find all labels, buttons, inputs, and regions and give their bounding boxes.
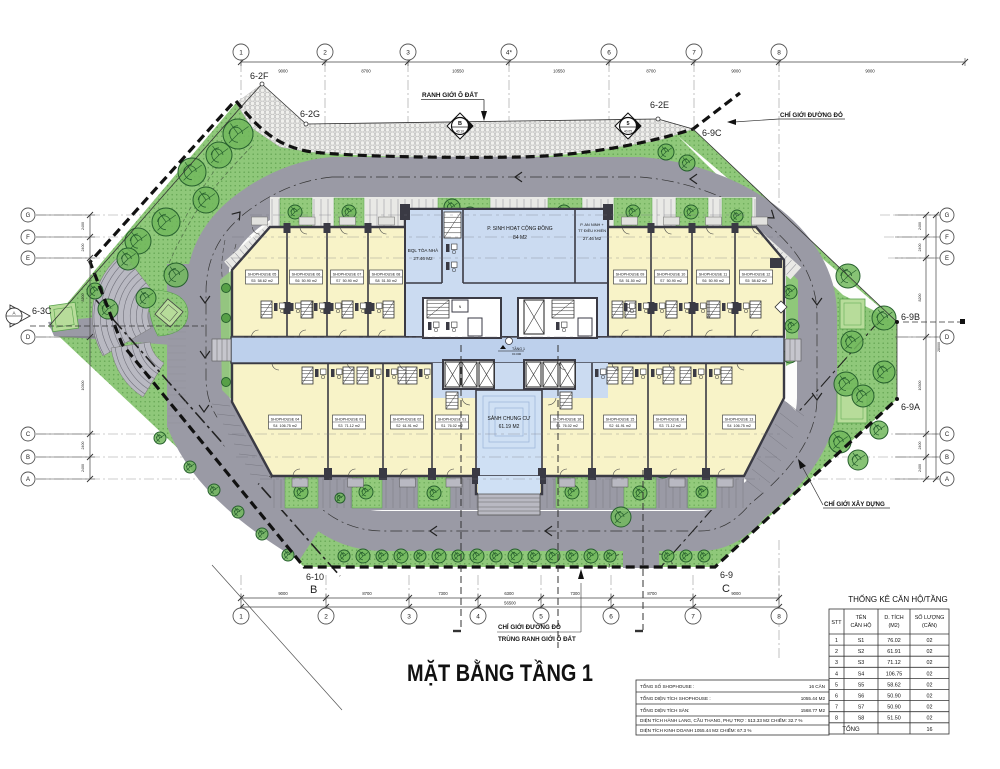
svg-text:STT: STT (831, 620, 842, 626)
svg-text:8: 8 (835, 716, 838, 722)
svg-text:S7: S7 (858, 705, 865, 711)
svg-text:1568.77 M2: 1568.77 M2 (801, 708, 826, 713)
svg-text:TÊN: TÊN (856, 613, 867, 621)
svg-text:10300: 10300 (918, 381, 922, 391)
svg-text:S5 58.62 m2: S5 58.62 m2 (745, 279, 767, 283)
svg-text:DIỆN TÍCH HÀNH LANG, CẦU THANG: DIỆN TÍCH HÀNH LANG, CẦU THANG, PHỤ TRỢ … (640, 716, 802, 723)
svg-text:SHOPHOUSE 03: SHOPHOUSE 03 (335, 418, 364, 422)
svg-text:DIỆN TÍCH KINH DOANH 1055.44 M: DIỆN TÍCH KINH DOANH 1055.44 M2 CHIẾM: 6… (640, 726, 751, 733)
svg-text:61.91: 61.91 (887, 649, 901, 655)
svg-text:84 M2: 84 M2 (513, 235, 527, 241)
svg-text:MẶT BẰNG TẦNG 1: MẶT BẰNG TẦNG 1 (407, 659, 593, 687)
svg-text:6-9C: 6-9C (702, 128, 722, 138)
svg-text:6: 6 (609, 613, 613, 620)
svg-text:3: 3 (407, 613, 411, 620)
svg-text:±0.000: ±0.000 (512, 352, 521, 356)
svg-text:F: F (26, 235, 30, 241)
svg-text:TẦNG 1: TẦNG 1 (512, 347, 525, 351)
svg-text:SHOPHOUSE 10: SHOPHOUSE 10 (657, 273, 686, 277)
svg-text:02: 02 (927, 638, 933, 644)
svg-text:2: 2 (324, 613, 328, 620)
svg-text:A: A (26, 477, 30, 483)
svg-text:S4 106.75 m2: S4 106.75 m2 (727, 424, 751, 428)
svg-text:B: B (310, 584, 317, 596)
svg-text:SHOPHOUSE 16: SHOPHOUSE 16 (553, 418, 582, 422)
svg-text:S6: S6 (858, 694, 865, 700)
svg-text:8700: 8700 (646, 69, 656, 74)
svg-text:CHỈ GIỚI ĐƯỜNG ĐỎ: CHỈ GIỚI ĐƯỜNG ĐỎ (498, 623, 561, 631)
svg-text:5: 5 (835, 682, 838, 688)
svg-text:40.10: 40.10 (456, 130, 464, 134)
svg-text:SHOPHOUSE 06: SHOPHOUSE 06 (292, 273, 321, 277)
svg-text:S1 76.02 m2: S1 76.02 m2 (441, 424, 463, 428)
svg-text:1: 1 (239, 613, 243, 620)
svg-text:S7 50.90 m2: S7 50.90 m2 (660, 279, 682, 283)
svg-text:S7 50.90 m2: S7 50.90 m2 (336, 279, 358, 283)
svg-text:TỔNG SỐ SHOPHOUSE :: TỔNG SỐ SHOPHOUSE : (640, 683, 694, 689)
svg-text:SHOPHOUSE 05: SHOPHOUSE 05 (248, 273, 277, 277)
svg-text:6-9: 6-9 (720, 570, 733, 580)
svg-text:02: 02 (927, 716, 933, 722)
svg-text:SẢNH CHUNG CƯ: SẢNH CHUNG CƯ (488, 415, 532, 422)
svg-text:S6 50.90 m2: S6 50.90 m2 (295, 279, 317, 283)
svg-text:SHOPHOUSE 02: SHOPHOUSE 02 (393, 418, 422, 422)
svg-text:58.62: 58.62 (887, 682, 901, 688)
svg-text:76.02: 76.02 (887, 638, 901, 644)
svg-text:S3 71.12 m2: S3 71.12 m2 (659, 424, 681, 428)
svg-text:7300: 7300 (570, 591, 580, 596)
svg-text:P. AN NINH +: P. AN NINH + (580, 222, 604, 227)
svg-text:40.05: 40.05 (624, 130, 632, 134)
svg-text:7: 7 (835, 705, 838, 711)
svg-text:SHOPHOUSE 08: SHOPHOUSE 08 (372, 273, 401, 277)
svg-text:8700: 8700 (362, 591, 372, 596)
svg-text:8200: 8200 (918, 294, 922, 302)
svg-text:10300: 10300 (81, 381, 85, 391)
svg-text:TỔNG: TỔNG (842, 726, 860, 733)
svg-text:D: D (26, 335, 31, 341)
svg-text:6: 6 (835, 694, 838, 700)
svg-text:7300: 7300 (438, 591, 448, 596)
svg-text:D: D (945, 335, 950, 341)
svg-text:S5: S5 (858, 682, 865, 688)
svg-text:6300: 6300 (504, 591, 514, 596)
svg-text:6-10: 6-10 (306, 572, 324, 582)
svg-text:S1: S1 (858, 638, 865, 644)
svg-text:G: G (26, 213, 31, 219)
svg-text:2400: 2400 (918, 442, 922, 450)
svg-text:9000: 9000 (731, 591, 741, 596)
svg-text:SHOPHOUSE 07: SHOPHOUSE 07 (333, 273, 362, 277)
svg-text:2: 2 (835, 649, 838, 655)
svg-text:A: A (945, 477, 949, 483)
svg-text:3: 3 (406, 49, 410, 56)
svg-text:27.46 M2: 27.46 M2 (413, 256, 433, 261)
svg-text:C: C (945, 432, 950, 438)
svg-text:TT ĐIỀU KHIỂN: TT ĐIỀU KHIỂN (578, 228, 606, 233)
svg-text:6-3C: 6-3C (32, 306, 52, 316)
svg-text:8: 8 (777, 49, 781, 56)
svg-text:A: A (12, 311, 15, 316)
svg-text:28000: 28000 (937, 342, 941, 352)
svg-text:BQL TÒA NHÀ: BQL TÒA NHÀ (408, 247, 439, 253)
svg-text:F: F (945, 235, 949, 241)
svg-text:2400: 2400 (81, 244, 85, 252)
svg-text:TỔNG DIỆN TÍCH SÀN:: TỔNG DIỆN TÍCH SÀN: (640, 706, 689, 713)
svg-text:THỐNG KÊ CĂN HỘ/TẦNG: THỐNG KÊ CĂN HỘ/TẦNG (848, 594, 948, 604)
svg-text:C: C (722, 583, 730, 595)
svg-text:9000: 9000 (278, 591, 288, 596)
svg-text:1: 1 (835, 638, 838, 644)
svg-text:50.90: 50.90 (887, 705, 901, 711)
svg-text:10550: 10550 (452, 69, 464, 74)
svg-text:02: 02 (927, 649, 933, 655)
svg-text:6-2G: 6-2G (300, 109, 320, 119)
svg-text:S4 106.75 m2: S4 106.75 m2 (273, 424, 297, 428)
svg-text:S8 51.50 m2: S8 51.50 m2 (619, 279, 641, 283)
svg-text:8700: 8700 (647, 591, 657, 596)
svg-text:9000: 9000 (278, 69, 288, 74)
svg-text:2400: 2400 (81, 464, 85, 472)
svg-text:SHOPHOUSE 14: SHOPHOUSE 14 (656, 418, 685, 422)
svg-text:2400: 2400 (81, 442, 85, 450)
svg-text:SHOPHOUSE 09: SHOPHOUSE 09 (616, 273, 645, 277)
svg-text:C: C (26, 432, 31, 438)
svg-text:6-9B: 6-9B (901, 312, 920, 322)
svg-text:6-9A: 6-9A (901, 402, 920, 412)
svg-text:4: 4 (835, 671, 838, 677)
svg-text:S6 50.90 m2: S6 50.90 m2 (702, 279, 724, 283)
svg-text:9000: 9000 (865, 69, 875, 74)
svg-text:S3: S3 (858, 660, 865, 666)
svg-text:2400: 2400 (918, 244, 922, 252)
svg-text:D. TÍCH: D. TÍCH (884, 614, 903, 621)
svg-text:8200: 8200 (81, 294, 85, 302)
svg-text:9000: 9000 (731, 69, 741, 74)
svg-text:1: 1 (239, 49, 243, 56)
svg-text:4*: 4* (506, 49, 513, 56)
svg-text:1055.44 M2: 1055.44 M2 (801, 696, 826, 701)
svg-text:CĂN HỘ: CĂN HỘ (851, 622, 872, 629)
svg-text:SHOPHOUSE 12: SHOPHOUSE 12 (742, 273, 771, 277)
svg-text:2400: 2400 (918, 222, 922, 230)
svg-text:B: B (26, 455, 30, 461)
svg-text:S4: S4 (858, 671, 865, 677)
svg-text:02: 02 (927, 671, 933, 677)
svg-text:B: B (945, 455, 949, 461)
svg-text:8700: 8700 (361, 69, 371, 74)
svg-text:71.12: 71.12 (887, 660, 901, 666)
svg-text:S3 71.12 m2: S3 71.12 m2 (338, 424, 360, 428)
svg-text:5: 5 (626, 121, 629, 127)
svg-text:SHOPHOUSE 01: SHOPHOUSE 01 (438, 418, 467, 422)
svg-text:TỔNG DIỆN TÍCH SHOPHOUSE :: TỔNG DIỆN TÍCH SHOPHOUSE : (640, 694, 711, 701)
svg-text:16: 16 (927, 727, 933, 733)
svg-text:S2: S2 (858, 649, 865, 655)
svg-text:CHỈ GIỚI XÂY DỰNG: CHỈ GIỚI XÂY DỰNG (824, 500, 885, 508)
svg-text:SHOPHOUSE 13: SHOPHOUSE 13 (725, 418, 754, 422)
svg-text:G: G (945, 213, 950, 219)
svg-text:S8: S8 (858, 716, 865, 722)
svg-text:S1 76.02 m2: S1 76.02 m2 (556, 424, 578, 428)
svg-text:51.50: 51.50 (887, 716, 901, 722)
svg-text:6-2F: 6-2F (250, 71, 269, 81)
svg-text:TRÙNG RANH GIỚI Ô ĐẤT: TRÙNG RANH GIỚI Ô ĐẤT (498, 635, 576, 643)
svg-text:4: 4 (476, 613, 480, 620)
svg-text:2: 2 (323, 49, 327, 56)
svg-text:P. SINH HOẠT CỘNG ĐỒNG: P. SINH HOẠT CỘNG ĐỒNG (487, 225, 552, 232)
svg-text:(CĂN): (CĂN) (922, 622, 937, 629)
svg-text:5: 5 (539, 613, 543, 620)
svg-text:16 CĂN: 16 CĂN (809, 683, 825, 689)
svg-text:SHOPHOUSE 11: SHOPHOUSE 11 (699, 273, 727, 277)
svg-text:02: 02 (927, 694, 933, 700)
svg-text:S8 51.50 m2: S8 51.50 m2 (375, 279, 397, 283)
svg-text:56500: 56500 (504, 601, 516, 606)
svg-text:E: E (26, 256, 30, 262)
svg-text:B: B (458, 121, 462, 127)
svg-text:02: 02 (927, 705, 933, 711)
svg-text:7: 7 (692, 49, 696, 56)
svg-text:6: 6 (607, 49, 611, 56)
svg-text:10550: 10550 (553, 69, 565, 74)
svg-text:SHOPHOUSE 04: SHOPHOUSE 04 (271, 418, 300, 422)
svg-text:8: 8 (777, 613, 781, 620)
svg-text:S5 58.62 m2: S5 58.62 m2 (251, 279, 273, 283)
svg-text:E: E (945, 256, 949, 262)
svg-text:2400: 2400 (918, 464, 922, 472)
svg-text:CHỈ GIỚI ĐƯỜNG ĐỎ: CHỈ GIỚI ĐƯỜNG ĐỎ (780, 111, 843, 119)
svg-text:02: 02 (927, 660, 933, 666)
svg-text:2400: 2400 (81, 222, 85, 230)
svg-text:SHOPHOUSE 15: SHOPHOUSE 15 (606, 418, 635, 422)
svg-text:50.90: 50.90 (887, 694, 901, 700)
svg-text:(M2): (M2) (888, 623, 899, 629)
svg-text:02: 02 (927, 682, 933, 688)
svg-text:6-2E: 6-2E (650, 100, 669, 110)
svg-text:S2 61.91 m2: S2 61.91 m2 (609, 424, 631, 428)
svg-text:3: 3 (835, 660, 838, 666)
svg-text:SỐ LƯỢNG: SỐ LƯỢNG (915, 614, 945, 621)
svg-text:61.19 M2: 61.19 M2 (499, 424, 520, 430)
svg-text:S2 61.91 m2: S2 61.91 m2 (396, 424, 418, 428)
svg-text:106.75: 106.75 (886, 671, 903, 677)
svg-text:7: 7 (691, 613, 695, 620)
